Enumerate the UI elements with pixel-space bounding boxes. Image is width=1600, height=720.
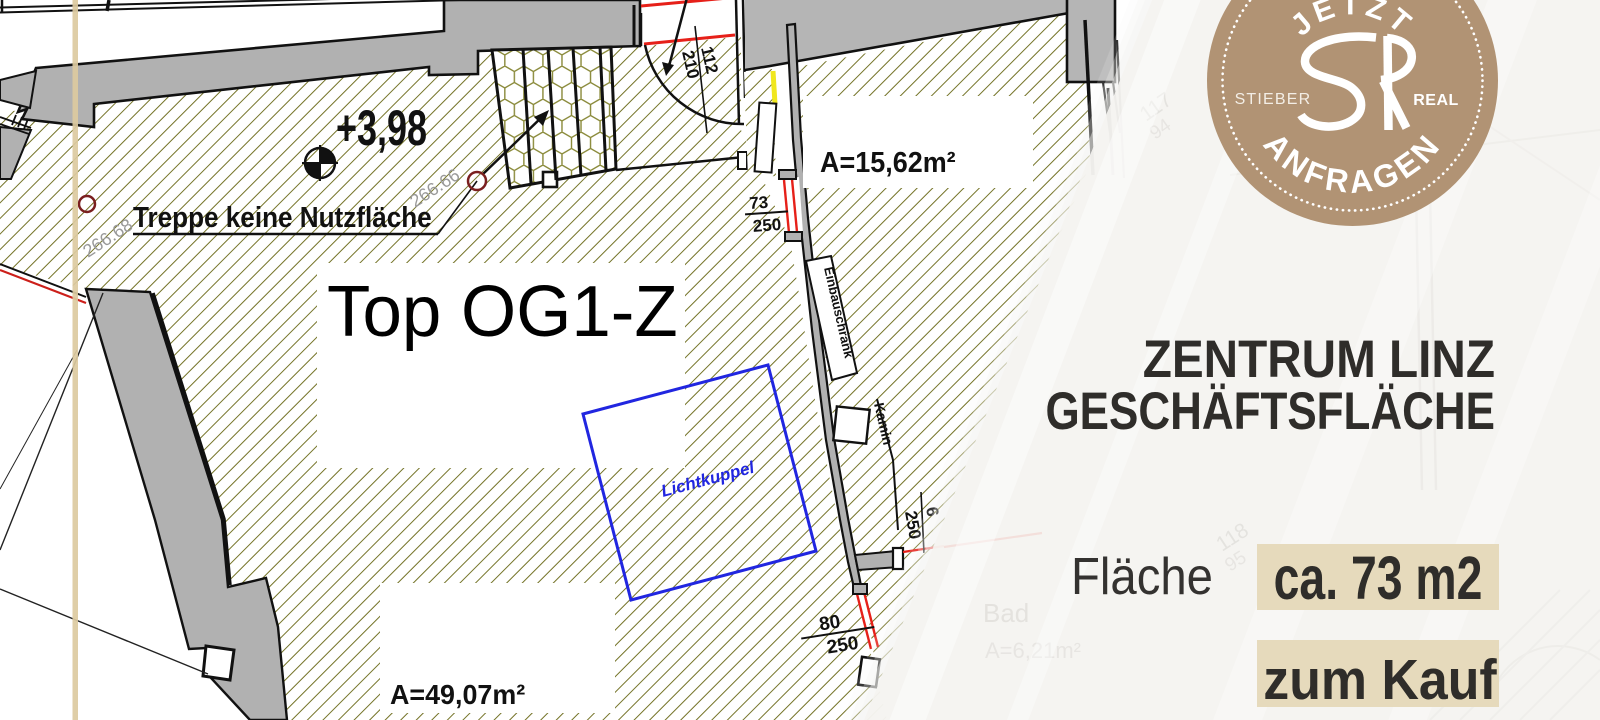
svg-text:ca. 73 m2: ca. 73 m2: [1274, 545, 1483, 613]
svg-text:Fläche: Fläche: [1071, 547, 1213, 606]
svg-text:zum Kauf: zum Kauf: [1263, 648, 1497, 712]
svg-text:73: 73: [749, 193, 769, 213]
svg-text:GESCHÄFTSFLÄCHE: GESCHÄFTSFLÄCHE: [1045, 382, 1495, 441]
svg-text:Treppe keine Nutzfläche: Treppe keine Nutzfläche: [133, 201, 432, 234]
svg-text:A=15,62m²: A=15,62m²: [820, 146, 956, 178]
svg-text:Top OG1-Z: Top OG1-Z: [327, 272, 678, 353]
svg-text:A=49,07m²: A=49,07m²: [390, 678, 525, 710]
svg-text:STIEBER: STIEBER: [1235, 91, 1312, 108]
svg-text:ZENTRUM LINZ: ZENTRUM LINZ: [1143, 329, 1495, 389]
svg-text:REAL: REAL: [1413, 92, 1459, 109]
svg-text:Bad: Bad: [983, 598, 1029, 628]
svg-text:+3,98: +3,98: [336, 101, 427, 156]
svg-text:250: 250: [752, 215, 782, 236]
